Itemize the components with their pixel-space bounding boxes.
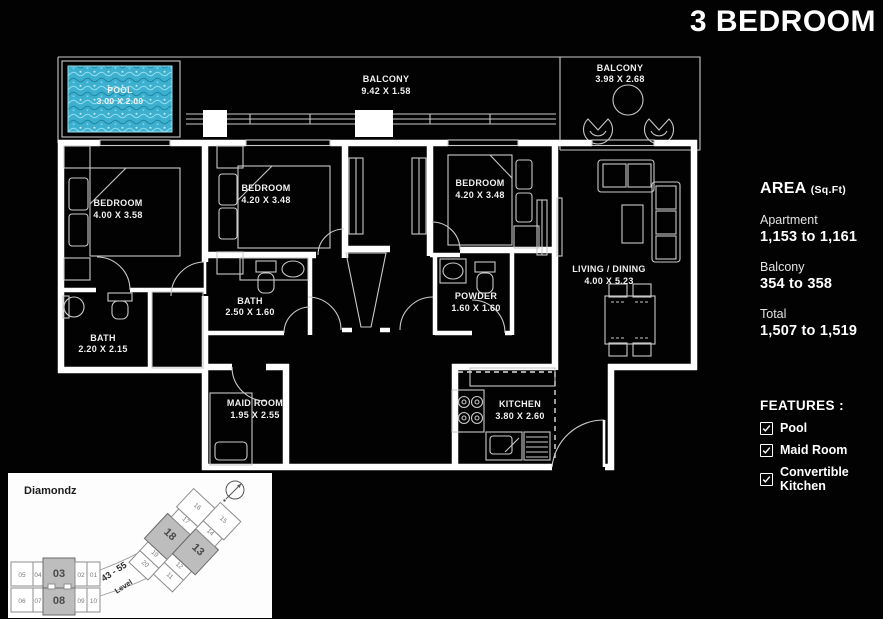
outdoor-furniture	[584, 85, 674, 144]
room-label-bath-1: BATH	[237, 296, 263, 306]
wall-pier	[203, 110, 227, 137]
room-label-bedroom-2: BEDROOM	[241, 183, 290, 193]
service-shaft	[152, 292, 203, 368]
unit-number-highlighted: 03	[53, 568, 65, 580]
feature-label: Maid Room	[780, 443, 847, 457]
room-dims-living-dining: 4.00 X 5.23	[584, 276, 633, 286]
unit-number: 05	[18, 572, 26, 579]
area-row-value: 1,507 to 1,519	[760, 323, 880, 339]
room-dims-maid-room: 1.95 X 2.55	[230, 410, 279, 420]
room-label-balcony-2: BALCONY	[597, 63, 644, 73]
unit-number: 09	[77, 598, 85, 605]
feature-item-pool: Pool	[760, 421, 882, 435]
room-label-bedroom-1: BEDROOM	[93, 198, 142, 208]
dining-set	[605, 284, 655, 356]
area-row-total: Total 1,507 to 1,519	[760, 307, 880, 339]
area-heading-text: AREA	[760, 180, 806, 197]
powder-fixtures	[440, 259, 495, 293]
room-dims-kitchen: 3.80 X 2.60	[495, 411, 544, 421]
bed-bedroom-3	[448, 155, 547, 255]
bath2-fixtures	[63, 293, 132, 319]
key-plan-row-bottom: 06 07 08 09 10	[11, 584, 100, 615]
key-plan-title: Diamondz	[24, 485, 77, 497]
area-row-balcony: Balcony 354 to 358	[760, 260, 880, 292]
room-label-bath-2: BATH	[90, 333, 116, 343]
room-dims-powder: 1.60 X 1.60	[451, 303, 500, 313]
feature-item-maid-room: Maid Room	[760, 443, 882, 457]
feature-item-convertible-kitchen: Convertible Kitchen	[760, 465, 882, 493]
feature-label: Pool	[780, 421, 807, 435]
unit-number: 07	[34, 598, 42, 605]
area-row-value: 1,153 to 1,161	[760, 229, 880, 245]
duct-shaft	[346, 253, 386, 327]
room-dims-balcony-2: 3.98 X 2.68	[595, 74, 644, 84]
feature-label: Convertible Kitchen	[780, 465, 882, 493]
area-row-label: Total	[760, 307, 880, 321]
room-label-kitchen: KITCHEN	[499, 399, 541, 409]
key-plan: Diamondz 05 04 03 02 01	[8, 473, 272, 618]
unit-number-highlighted: 08	[53, 595, 65, 607]
features-panel: FEATURES : Pool Maid Room Convertible Ki…	[760, 398, 882, 493]
floor-plan-drawing: POOL 3.00 X 2.00 BALCONY 9.42 X 1.58 BAL…	[0, 0, 745, 480]
room-label-pool: POOL	[107, 85, 132, 95]
room-dims-bedroom-1: 4.00 X 3.58	[93, 210, 142, 220]
floor-plan-page: 3 BEDROOM	[0, 0, 883, 619]
area-heading: AREA (Sq.Ft)	[760, 180, 880, 198]
room-label-maid-room: MAID ROOM	[227, 398, 283, 408]
checkbox-checked-icon	[760, 422, 773, 435]
doors	[97, 222, 604, 467]
area-row-label: Balcony	[760, 260, 880, 274]
room-label-powder: POWDER	[455, 291, 498, 301]
wall-pier	[355, 110, 393, 137]
bath-fixtures	[240, 258, 308, 293]
unit-number: 04	[34, 572, 42, 579]
area-heading-unit: (Sq.Ft)	[811, 184, 846, 196]
checkbox-checked-icon	[760, 473, 773, 486]
unit-number: 10	[90, 598, 98, 605]
features-heading: FEATURES :	[760, 398, 882, 413]
unit-number: 06	[18, 598, 26, 605]
room-dims-pool: 3.00 X 2.00	[97, 96, 144, 106]
room-label-balcony-1: BALCONY	[363, 74, 410, 84]
room-dims-bedroom-2: 4.20 X 3.48	[241, 195, 290, 205]
area-panel: AREA (Sq.Ft) Apartment 1,153 to 1,161 Ba…	[760, 180, 880, 339]
living-furniture	[557, 160, 680, 262]
area-row-apartment: Apartment 1,153 to 1,161	[760, 213, 880, 245]
unit-number: 02	[77, 572, 85, 579]
checkbox-checked-icon	[760, 444, 773, 457]
room-dims-bedroom-3: 4.20 X 3.48	[455, 190, 504, 200]
room-dims-balcony-1: 9.42 X 1.58	[361, 86, 410, 96]
unit-number: 01	[90, 572, 98, 579]
area-row-label: Apartment	[760, 213, 880, 227]
room-dims-bath-1: 2.50 X 1.60	[225, 307, 274, 317]
room-label-bedroom-3: BEDROOM	[455, 178, 504, 188]
room-dims-bath-2: 2.20 X 2.15	[78, 344, 127, 354]
area-row-value: 354 to 358	[760, 276, 880, 292]
room-label-living-dining: LIVING / DINING	[572, 264, 646, 274]
